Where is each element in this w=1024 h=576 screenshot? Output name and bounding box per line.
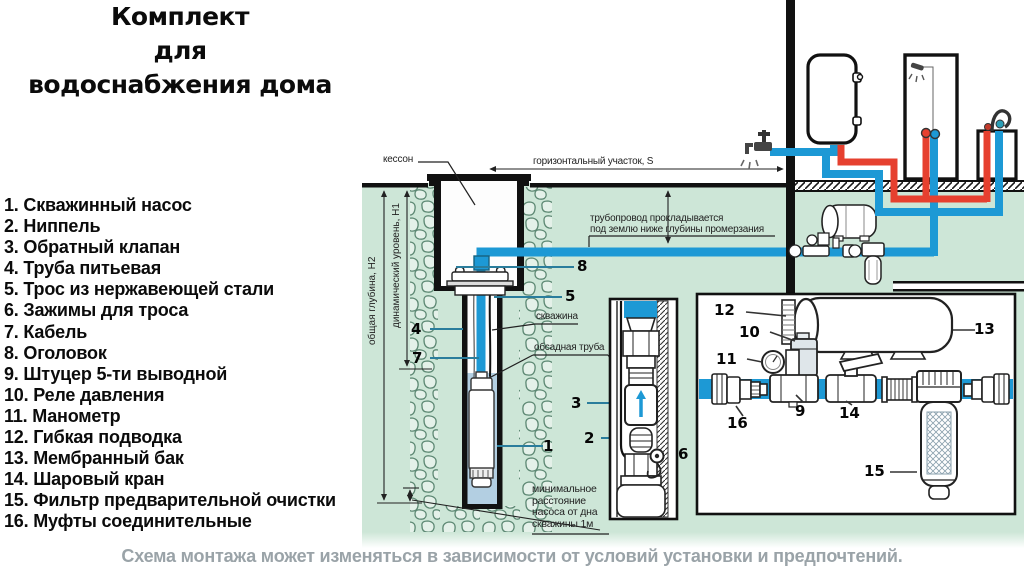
parts-list-item: 14. Шаровый кран xyxy=(4,469,336,490)
parts-list-item: 12. Гибкая подводка xyxy=(4,427,336,448)
sink-faucet-icon xyxy=(985,111,1010,131)
label-casing-pipe: обсадная труба xyxy=(534,342,604,353)
marker-4: 4 xyxy=(411,320,421,338)
label-min-distance-3: насоса от дна xyxy=(532,507,597,519)
outdoor-tap-icon xyxy=(741,130,772,169)
label-total-depth: общая глубина, Н2 xyxy=(367,235,378,345)
pump-detail-panel xyxy=(610,299,677,519)
title-line-3: водоснабжения дома xyxy=(0,68,360,102)
marker-14: 14 xyxy=(839,404,860,422)
parts-list-item: 16. Муфты соединительные xyxy=(4,511,336,532)
marker-9: 9 xyxy=(795,402,805,420)
label-borehole: скважина xyxy=(536,311,578,322)
marker-7: 7 xyxy=(412,349,422,367)
title-line-1: Комплект xyxy=(0,0,360,34)
marker-15: 15 xyxy=(864,462,885,480)
water-heater-drawing xyxy=(808,55,863,143)
parts-list-item: 1. Скважинный насос xyxy=(4,195,336,216)
marker-8: 8 xyxy=(577,257,587,275)
parts-list-item: 5. Трос из нержавеющей стали xyxy=(4,279,336,300)
marker-5: 5 xyxy=(565,287,575,305)
marker-10: 10 xyxy=(739,323,760,341)
label-pipeline-note-1: трубопровод прокладывается xyxy=(590,213,723,224)
parts-list-item: 9. Штуцер 5-ти выводной xyxy=(4,364,336,385)
ground-surface xyxy=(362,183,792,188)
page-title: Комплект для водоснабжения дома xyxy=(0,0,360,102)
label-min-distance: минимальное расстояние насоса от дна скв… xyxy=(532,484,597,530)
parts-list-item: 13. Мембранный бак xyxy=(4,448,336,469)
marker-16: 16 xyxy=(727,414,748,432)
parts-list-item: 2. Ниппель xyxy=(4,216,336,237)
parts-list-item: 10. Реле давления xyxy=(4,385,336,406)
marker-6: 6 xyxy=(678,445,688,463)
label-min-distance-4: скважины 1м xyxy=(532,519,597,531)
marker-2: 2 xyxy=(584,429,594,447)
parts-list-item: 11. Манометр xyxy=(4,406,336,427)
parts-list-item: 3. Обратный клапан xyxy=(4,237,336,258)
marker-12: 12 xyxy=(714,301,735,319)
title-line-2: для xyxy=(0,34,360,68)
parts-list-item: 15. Фильтр предварительной очистки xyxy=(4,490,336,511)
marker-1: 1 xyxy=(543,437,553,455)
label-min-distance-1: минимальное xyxy=(532,484,597,496)
label-pipeline-note-2: под землю ниже глубины промерзания xyxy=(590,224,764,235)
submersible-pump-drawing xyxy=(469,372,494,487)
marker-13: 13 xyxy=(974,320,995,338)
label-caisson: кессон xyxy=(383,154,413,165)
parts-list: 1. Скважинный насос 2. Ниппель 3. Обратн… xyxy=(4,195,336,533)
marker-11: 11 xyxy=(716,350,737,368)
parts-list-item: 7. Кабель xyxy=(4,322,336,343)
marker-3: 3 xyxy=(571,394,581,412)
footer-note: Схема монтажа может изменяться в зависим… xyxy=(0,546,1024,567)
parts-list-item: 8. Оголовок xyxy=(4,343,336,364)
label-horizontal-section: горизонтальный участок, S xyxy=(533,156,653,167)
label-dynamic-level: динамический уровень, Н1 xyxy=(391,198,402,328)
parts-list-item: 4. Труба питьевая xyxy=(4,258,336,279)
parts-list-item: 6. Зажимы для троса xyxy=(4,300,336,321)
infographic-water-supply-kit: Комплект для водоснабжения дома 1. Скваж… xyxy=(0,0,1024,576)
